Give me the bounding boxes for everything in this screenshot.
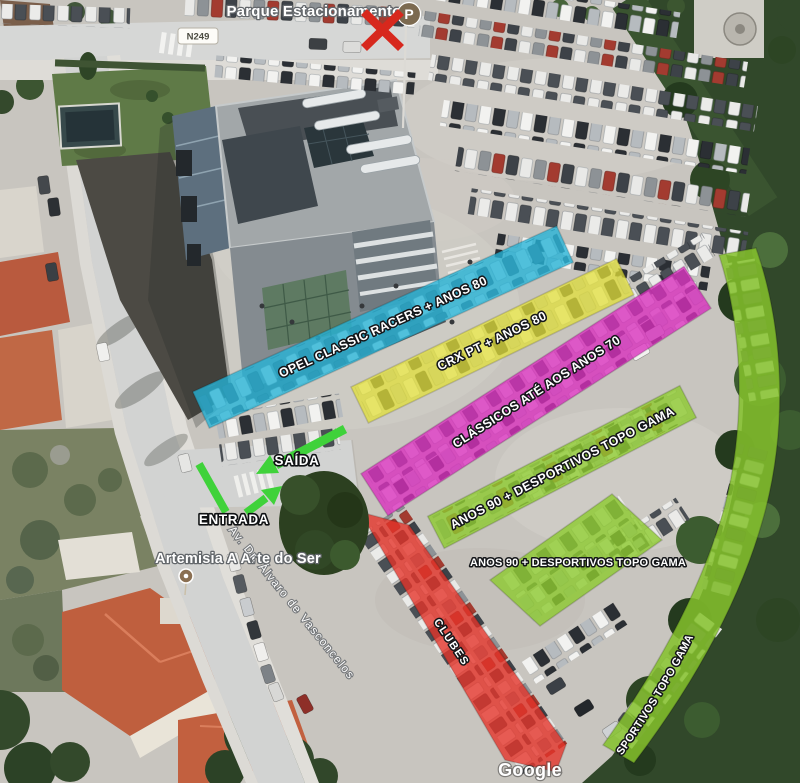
aerial-map: OPEL CLASSIC RACERS + ANOS 80 CRX PT + A… [0,0,800,783]
zone-label-anos90-block: ANOS 90 + DESPORTIVOS TOPO GAMA [470,557,686,569]
artemisia-poi-label[interactable]: Artemisia A Arte do Ser [155,551,321,567]
parking-poi-letter: P [404,6,413,22]
google-watermark[interactable]: Google [498,760,562,780]
reflecting-pool [59,103,121,148]
map-screenshot: OPEL CLASSIC RACERS + ANOS 80 CRX PT + A… [0,0,800,783]
road-badge: N249 [178,28,218,44]
exit-label: SAÍDA [274,453,319,468]
road-badge-text: N249 [187,32,210,43]
